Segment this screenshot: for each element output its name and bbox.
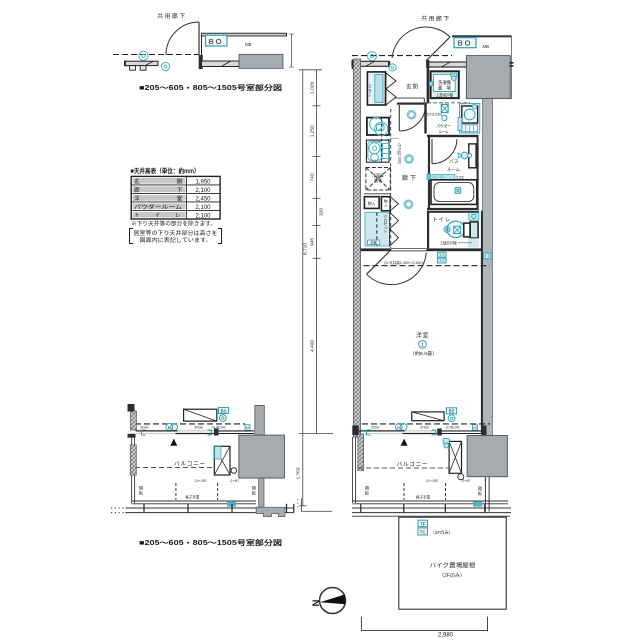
svg-text:共用廊下: 共用廊下 — [157, 12, 187, 20]
svg-text:（2Fのみ）: （2Fのみ） — [419, 425, 431, 430]
svg-text:玄関: 玄関 — [406, 83, 419, 91]
svg-text:（2Fのみ）: （2Fのみ） — [369, 425, 381, 430]
svg-text:（10～15F）: （10～15F） — [193, 478, 209, 483]
svg-text:1,026: 1,026 — [310, 81, 316, 93]
svg-text:クロゼット: クロゼット — [383, 214, 388, 233]
svg-text:ルーム: ルーム — [439, 129, 449, 134]
svg-text:2,980: 2,980 — [438, 633, 454, 639]
svg-text:4,400: 4,400 — [310, 340, 316, 352]
svg-text:格子手摺: 格子手摺 — [416, 495, 430, 500]
svg-text:（2Fのみ）: （2Fのみ） — [439, 573, 465, 579]
svg-text:ルーム: ルーム — [447, 167, 460, 172]
svg-text:1,760: 1,760 — [296, 467, 302, 479]
svg-text:物入: 物入 — [368, 201, 376, 206]
svg-text:バイク置場屋根: バイク置場屋根 — [430, 561, 476, 569]
svg-text:物入: 物入 — [383, 199, 388, 208]
svg-text:上部吊戸棚: 上部吊戸棚 — [440, 240, 457, 245]
svg-text:2,100: 2,100 — [195, 205, 211, 211]
svg-text:上部吊戸棚: 上部吊戸棚 — [436, 92, 453, 97]
svg-text:（2～9F）: （2～9F） — [228, 478, 240, 483]
svg-text:BO: BO — [209, 37, 224, 46]
svg-text:2,100: 2,100 — [195, 188, 211, 194]
svg-text:（10～15F）: （10～15F） — [424, 478, 440, 483]
svg-text:MB: MB — [245, 42, 252, 47]
svg-text:冷蔵庫: 冷蔵庫 — [372, 173, 384, 178]
svg-text:（D:天井高2,300～2,450）: （D:天井高2,300～2,450） — [382, 260, 425, 265]
svg-text:ミラー: ミラー — [368, 84, 373, 98]
svg-text:2,100: 2,100 — [195, 213, 211, 219]
svg-text:共用廊下: 共用廊下 — [421, 15, 451, 23]
svg-text:トイレ: トイレ — [432, 217, 451, 223]
svg-text:（2～9F）: （2～9F） — [460, 478, 472, 483]
svg-text:320: 320 — [319, 208, 325, 216]
svg-text:■205～605・805～1505号室部分図: ■205～605・805～1505号室部分図 — [139, 83, 282, 92]
svg-text:2,450: 2,450 — [195, 197, 211, 203]
svg-text:（GL+約2,000）: （GL+約2,000） — [210, 425, 227, 430]
svg-text:パウダールーム: パウダールーム — [134, 203, 182, 211]
svg-text:（D:h約2,030）: （D:h約2,030） — [396, 141, 401, 166]
svg-text:バルコニー: バルコニー — [174, 461, 206, 468]
svg-text:BS: BS — [221, 408, 227, 413]
svg-text:置 場: 置 場 — [438, 85, 452, 92]
svg-text:BS: BS — [449, 409, 455, 414]
svg-text:M: M — [473, 426, 476, 430]
svg-text:MB: MB — [483, 44, 490, 49]
svg-text:TF: TF — [420, 521, 426, 526]
svg-text:M: M — [246, 426, 249, 430]
svg-text:■天井高表（単位：約mm）: ■天井高表（単位：約mm） — [131, 166, 200, 175]
svg-text:格子手摺: 格子手摺 — [185, 495, 199, 500]
svg-text:（2Fのみ）: （2Fのみ） — [193, 425, 205, 430]
svg-text:バルコニー: バルコニー — [397, 461, 429, 468]
svg-text:図面内に表記しています。: 図面内に表記しています。 — [140, 236, 212, 244]
svg-text:（2Fのみ）: （2Fのみ） — [139, 425, 151, 430]
svg-text:TC: TC — [420, 530, 427, 535]
svg-text:洋室: 洋室 — [416, 332, 429, 340]
svg-text:枕棚: 枕棚 — [370, 240, 376, 245]
svg-text:740: 740 — [310, 173, 316, 181]
svg-text:1: 1 — [421, 343, 424, 349]
svg-text:1,950: 1,950 — [195, 180, 211, 186]
svg-text:BO: BO — [458, 39, 473, 48]
svg-text:1,250: 1,250 — [310, 125, 316, 137]
svg-text:※下り天井等の部分を除きます。: ※下り天井等の部分を除きます。 — [131, 219, 216, 227]
svg-text:B: B — [397, 425, 400, 430]
svg-text:（約8.0畳）: （約8.0畳） — [410, 350, 438, 357]
svg-text:（D:h2,030）: （D:h2,030） — [424, 111, 445, 116]
svg-text:8,710: 8,710 — [303, 243, 309, 255]
svg-text:バス: バス — [449, 159, 459, 164]
svg-text:B: B — [168, 425, 171, 430]
svg-text:945: 945 — [310, 238, 316, 246]
svg-text:■205～605・805～1505号室部分図: ■205～605・805～1505号室部分図 — [139, 538, 282, 547]
svg-text:（GL+約2,000）: （GL+約2,000） — [444, 425, 461, 430]
svg-text:（1116）: （1116） — [454, 174, 466, 179]
svg-text:置場: 置場 — [374, 178, 382, 183]
svg-text:N: N — [311, 599, 322, 606]
svg-text:居室等の下り天井部分は高さを: 居室等の下り天井部分は高さを — [134, 229, 218, 237]
svg-text:廊下: 廊下 — [402, 174, 418, 182]
